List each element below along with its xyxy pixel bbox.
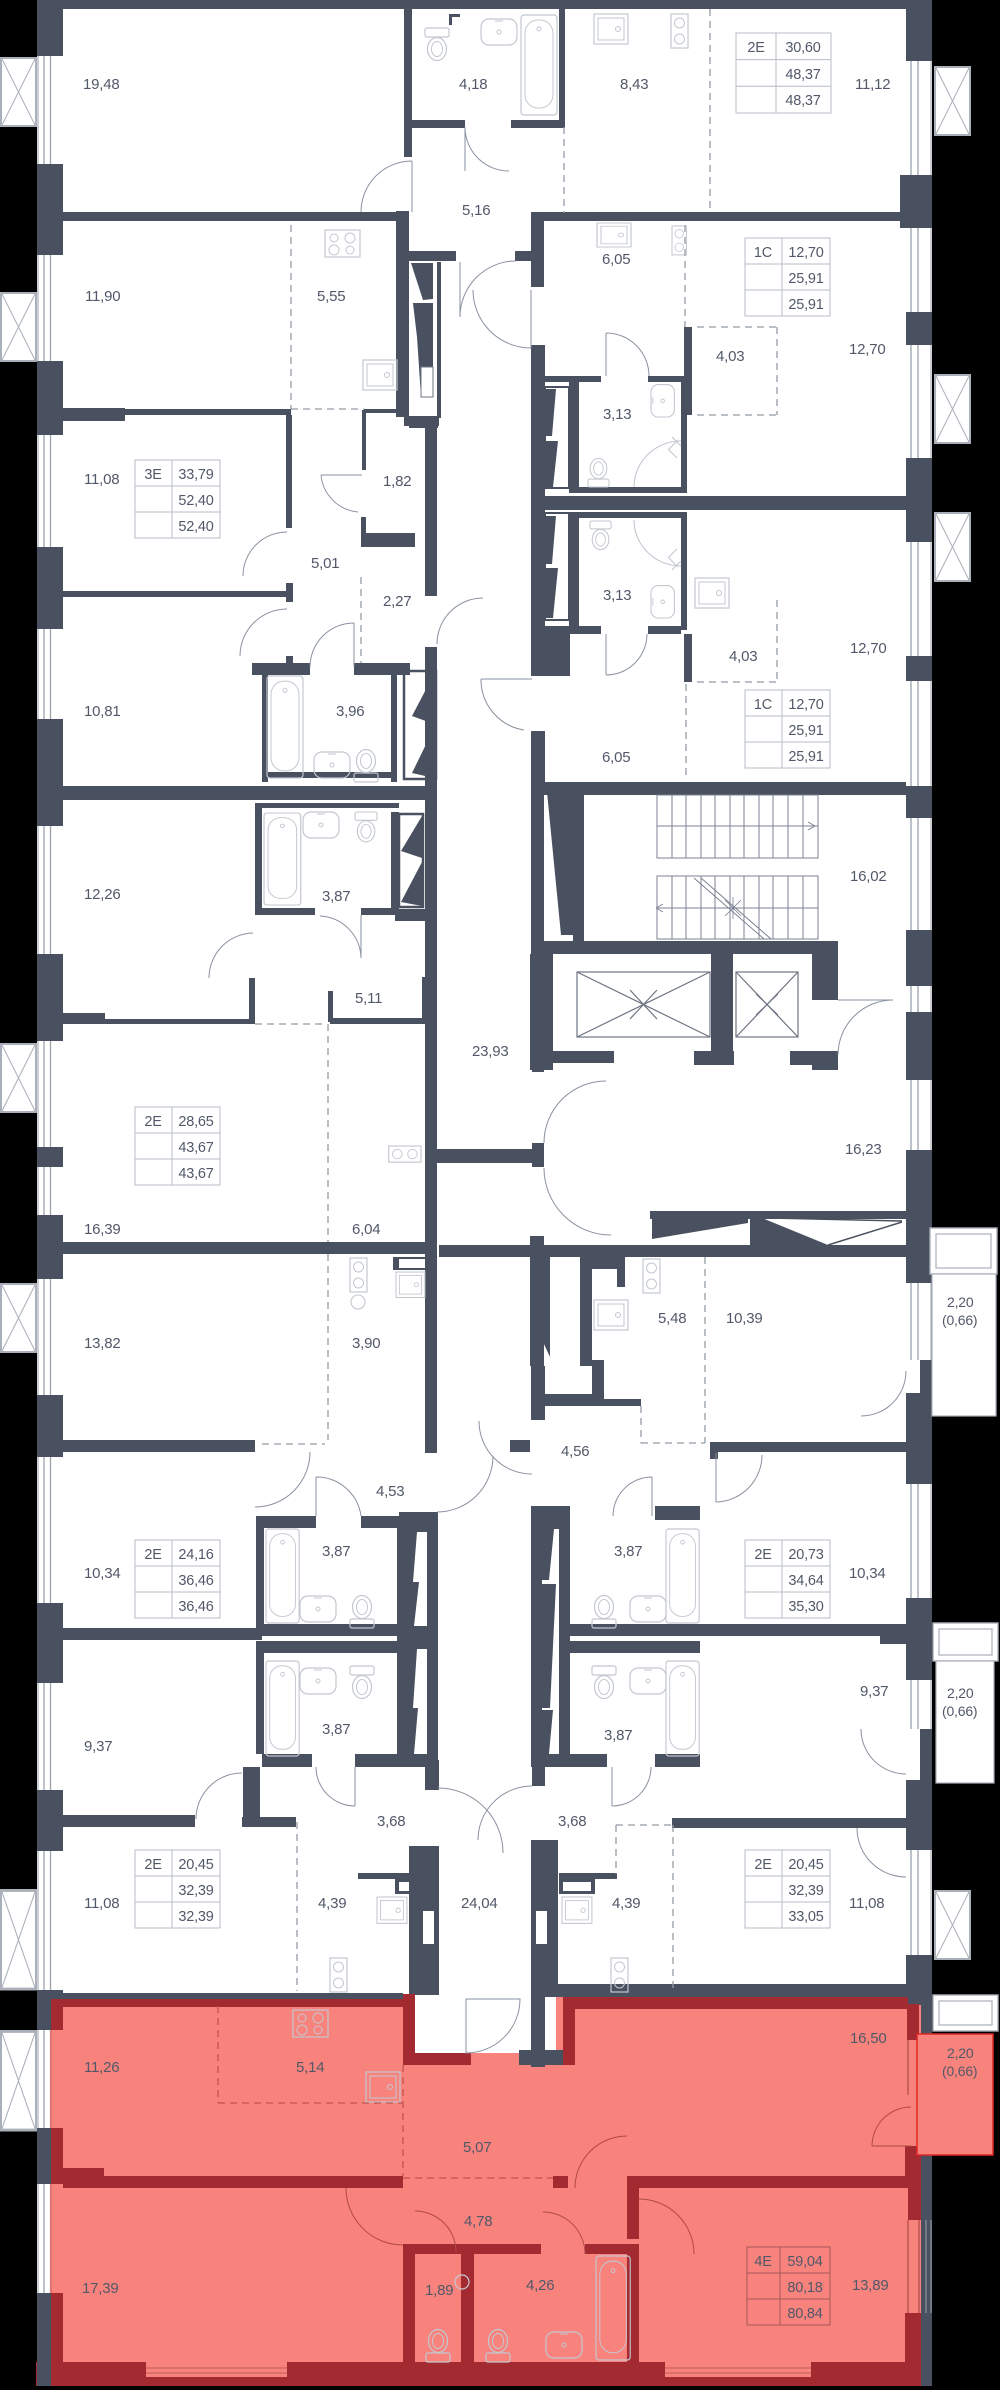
svg-text:12,70: 12,70 bbox=[788, 697, 823, 713]
svg-text:1,89: 1,89 bbox=[425, 2282, 453, 2299]
svg-text:19,48: 19,48 bbox=[83, 76, 120, 93]
svg-text:25,91: 25,91 bbox=[788, 723, 823, 739]
svg-text:5,11: 5,11 bbox=[355, 990, 382, 1007]
svg-text:9,37: 9,37 bbox=[860, 1683, 888, 1700]
svg-text:20,45: 20,45 bbox=[178, 1857, 213, 1873]
svg-text:25,91: 25,91 bbox=[788, 749, 823, 765]
svg-text:6,04: 6,04 bbox=[352, 1221, 380, 1238]
svg-text:12,70: 12,70 bbox=[850, 640, 887, 657]
svg-text:2,20: 2,20 bbox=[947, 1294, 974, 1310]
svg-text:2,20: 2,20 bbox=[947, 1685, 974, 1701]
svg-text:43,67: 43,67 bbox=[178, 1166, 213, 1182]
svg-text:11,08: 11,08 bbox=[84, 1895, 119, 1912]
svg-text:(0,66): (0,66) bbox=[942, 2063, 977, 2079]
svg-text:20,73: 20,73 bbox=[788, 1547, 823, 1563]
svg-text:4,39: 4,39 bbox=[612, 1895, 640, 1912]
svg-text:32,39: 32,39 bbox=[178, 1909, 213, 1925]
svg-text:3,87: 3,87 bbox=[322, 1721, 350, 1738]
svg-text:80,84: 80,84 bbox=[787, 2306, 822, 2322]
svg-text:5,55: 5,55 bbox=[317, 288, 345, 305]
svg-text:12,70: 12,70 bbox=[788, 245, 823, 261]
svg-text:12,70: 12,70 bbox=[849, 341, 886, 358]
svg-text:13,89: 13,89 bbox=[852, 2277, 889, 2294]
svg-text:3,13: 3,13 bbox=[603, 587, 631, 604]
svg-text:4,56: 4,56 bbox=[561, 1443, 589, 1460]
svg-text:4,03: 4,03 bbox=[716, 348, 744, 365]
svg-text:4,26: 4,26 bbox=[526, 2277, 554, 2294]
svg-text:20,45: 20,45 bbox=[788, 1857, 823, 1873]
svg-text:43,67: 43,67 bbox=[178, 1140, 213, 1156]
svg-text:1,82: 1,82 bbox=[383, 473, 411, 490]
svg-text:24,04: 24,04 bbox=[461, 1895, 498, 1912]
svg-text:(0,66): (0,66) bbox=[942, 1312, 977, 1328]
svg-text:25,91: 25,91 bbox=[788, 297, 823, 313]
svg-text:2,20: 2,20 bbox=[947, 2045, 974, 2061]
svg-text:52,40: 52,40 bbox=[178, 493, 213, 509]
svg-text:2Е: 2Е bbox=[754, 1547, 772, 1563]
svg-text:2Е: 2Е bbox=[144, 1857, 162, 1873]
svg-text:48,37: 48,37 bbox=[785, 67, 820, 83]
svg-text:3,13: 3,13 bbox=[603, 406, 631, 423]
svg-text:5,16: 5,16 bbox=[462, 202, 490, 219]
svg-text:80,18: 80,18 bbox=[787, 2280, 822, 2296]
svg-text:3Е: 3Е bbox=[144, 467, 162, 483]
svg-text:5,48: 5,48 bbox=[658, 1310, 686, 1327]
svg-text:5,07: 5,07 bbox=[463, 2139, 491, 2156]
svg-text:4,18: 4,18 bbox=[459, 76, 487, 93]
svg-text:4Е: 4Е bbox=[754, 2254, 772, 2270]
svg-text:10,81: 10,81 bbox=[84, 703, 121, 720]
svg-text:4,53: 4,53 bbox=[376, 1483, 404, 1500]
svg-text:3,87: 3,87 bbox=[322, 888, 350, 905]
svg-text:4,39: 4,39 bbox=[318, 1895, 346, 1912]
svg-text:33,79: 33,79 bbox=[178, 467, 213, 483]
svg-text:4,78: 4,78 bbox=[464, 2213, 492, 2230]
svg-text:6,05: 6,05 bbox=[602, 251, 630, 268]
svg-text:36,46: 36,46 bbox=[178, 1599, 213, 1615]
svg-text:4,03: 4,03 bbox=[729, 648, 757, 665]
svg-text:2,27: 2,27 bbox=[383, 593, 411, 610]
svg-text:3,90: 3,90 bbox=[352, 1335, 380, 1352]
svg-text:59,04: 59,04 bbox=[787, 2254, 822, 2270]
svg-text:2Е: 2Е bbox=[747, 40, 765, 56]
svg-text:30,60: 30,60 bbox=[785, 40, 820, 56]
svg-text:52,40: 52,40 bbox=[178, 519, 213, 535]
svg-text:10,39: 10,39 bbox=[726, 1310, 763, 1327]
svg-text:16,23: 16,23 bbox=[845, 1141, 882, 1158]
svg-text:32,39: 32,39 bbox=[178, 1883, 213, 1899]
svg-text:23,93: 23,93 bbox=[472, 1043, 509, 1060]
svg-text:16,02: 16,02 bbox=[850, 868, 887, 885]
svg-text:11,08: 11,08 bbox=[849, 1895, 884, 1912]
svg-text:35,30: 35,30 bbox=[788, 1599, 823, 1615]
svg-text:3,68: 3,68 bbox=[558, 1813, 586, 1830]
svg-text:17,39: 17,39 bbox=[82, 2280, 119, 2297]
svg-text:3,87: 3,87 bbox=[322, 1543, 350, 1560]
svg-text:12,26: 12,26 bbox=[84, 886, 121, 903]
svg-text:25,91: 25,91 bbox=[788, 271, 823, 287]
svg-text:2Е: 2Е bbox=[754, 1857, 772, 1873]
svg-text:36,46: 36,46 bbox=[178, 1573, 213, 1589]
svg-text:11,26: 11,26 bbox=[84, 2059, 119, 2076]
svg-text:10,34: 10,34 bbox=[84, 1565, 121, 1582]
svg-text:1С: 1С bbox=[754, 245, 772, 261]
svg-text:(0,66): (0,66) bbox=[942, 1703, 977, 1719]
svg-text:33,05: 33,05 bbox=[788, 1909, 823, 1925]
svg-text:13,82: 13,82 bbox=[84, 1335, 121, 1352]
svg-text:11,08: 11,08 bbox=[84, 471, 119, 488]
svg-text:5,01: 5,01 bbox=[311, 555, 339, 572]
svg-text:16,50: 16,50 bbox=[850, 2030, 887, 2047]
svg-text:11,90: 11,90 bbox=[85, 288, 120, 305]
svg-text:10,34: 10,34 bbox=[849, 1565, 886, 1582]
svg-text:3,96: 3,96 bbox=[336, 703, 364, 720]
svg-text:16,39: 16,39 bbox=[84, 1221, 121, 1238]
svg-text:28,65: 28,65 bbox=[178, 1114, 213, 1130]
svg-text:3,87: 3,87 bbox=[614, 1543, 642, 1560]
svg-text:3,87: 3,87 bbox=[604, 1727, 632, 1744]
svg-text:24,16: 24,16 bbox=[178, 1547, 213, 1563]
svg-text:3,68: 3,68 bbox=[377, 1813, 405, 1830]
svg-text:2Е: 2Е bbox=[144, 1114, 162, 1130]
svg-text:6,05: 6,05 bbox=[602, 749, 630, 766]
svg-text:5,14: 5,14 bbox=[296, 2059, 324, 2076]
svg-text:32,39: 32,39 bbox=[788, 1883, 823, 1899]
svg-text:1С: 1С bbox=[754, 697, 772, 713]
svg-text:48,37: 48,37 bbox=[785, 93, 820, 109]
svg-text:9,37: 9,37 bbox=[84, 1738, 112, 1755]
svg-text:8,43: 8,43 bbox=[620, 76, 648, 93]
svg-text:34,64: 34,64 bbox=[788, 1573, 823, 1589]
svg-text:2Е: 2Е bbox=[144, 1547, 162, 1563]
svg-text:11,12: 11,12 bbox=[855, 76, 890, 93]
